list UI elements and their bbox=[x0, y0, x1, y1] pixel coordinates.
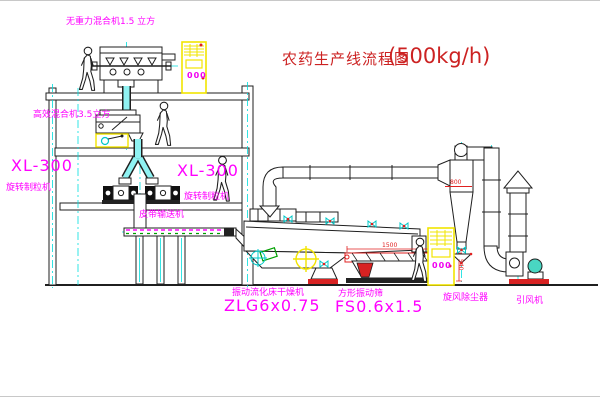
control-cabinet-top bbox=[182, 42, 206, 93]
label-dryer-model: ZLG6x0.75 bbox=[224, 298, 321, 314]
granulator-left bbox=[102, 178, 138, 204]
label-fan: 引风机 bbox=[516, 297, 543, 306]
exhaust-stack bbox=[504, 171, 532, 252]
label-high-eff-mixer: 高效混合机3.5立方 bbox=[33, 111, 110, 120]
dryer-foot-base bbox=[308, 279, 338, 284]
y-splitter-pipes bbox=[125, 158, 151, 178]
flow-diagram-canvas: 农药生产线流程图 (500kg/h) 无重力混合机1.5 立方 高效混合机3.5… bbox=[0, 0, 600, 403]
induced-draft-fan bbox=[506, 252, 549, 284]
cabinet-right-display: 000 bbox=[432, 262, 452, 270]
dim-screen-height: 540 bbox=[457, 259, 463, 270]
page-title-capacity: (500kg/h) bbox=[388, 46, 490, 67]
cabinet-top-display: 000 bbox=[187, 72, 207, 80]
label-granulator-left-model: XL-300 bbox=[11, 158, 73, 174]
fan-suction-duct bbox=[482, 148, 509, 272]
control-cabinet-right bbox=[428, 228, 454, 285]
dim-cyclone: 800 bbox=[450, 180, 461, 186]
belt-conveyor bbox=[124, 228, 249, 284]
label-granulator-left-name: 旋转制粒机 bbox=[6, 184, 51, 193]
person-icon bbox=[155, 102, 170, 145]
granulator-right bbox=[144, 178, 180, 204]
label-screen-model: FS0.6x1.5 bbox=[335, 299, 423, 315]
gravity-mixer bbox=[92, 47, 175, 93]
mixer-stand bbox=[96, 134, 128, 147]
label-granulator-right-model: XL-300 bbox=[177, 163, 239, 179]
label-gravity-mixer: 无重力混合机1.5 立方 bbox=[66, 18, 155, 27]
label-granulator-right-name: 旋转制粒机 bbox=[184, 193, 229, 202]
label-belt-conveyor: 皮带输送机 bbox=[139, 211, 184, 220]
exhaust-duct bbox=[260, 160, 450, 217]
dim-screen-length: 1500 bbox=[382, 243, 397, 249]
label-cyclone: 旋风除尘器 bbox=[443, 294, 488, 303]
